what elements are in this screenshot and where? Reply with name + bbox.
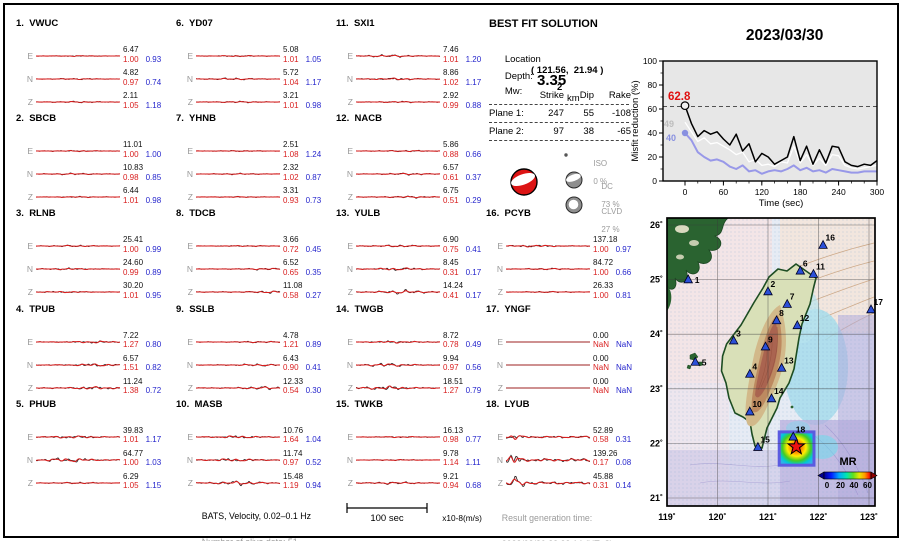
trace-values: 5.081.011.05 bbox=[283, 45, 321, 64]
component-label: Z bbox=[493, 383, 503, 393]
plot-xlabel: Time (sec) bbox=[759, 198, 804, 209]
waveform-trace bbox=[36, 449, 126, 471]
trace-row: N6.520.650.35 bbox=[196, 258, 346, 280]
misfit2-value: 0.73 bbox=[306, 196, 322, 205]
misfit1-value: 1.21 bbox=[283, 340, 299, 349]
lat-tick-label: 25˚ bbox=[650, 275, 663, 285]
misfit1-value: 1.08 bbox=[283, 150, 299, 159]
amplitude-value: 0.00 bbox=[593, 331, 609, 340]
misfit1-value: 0.41 bbox=[443, 291, 459, 300]
trace-values: 6.571.510.82 bbox=[123, 354, 161, 373]
misfit2-value: 0.88 bbox=[466, 101, 482, 110]
amplitude-value: 3.66 bbox=[283, 235, 299, 244]
scalebar-label: 100 sec bbox=[346, 513, 428, 524]
waveform-trace bbox=[356, 163, 446, 185]
waveform-trace bbox=[356, 472, 446, 494]
component-label: Z bbox=[493, 478, 503, 488]
lat-tick-label: 23˚ bbox=[650, 384, 663, 394]
table-divider bbox=[489, 104, 629, 105]
misfit2-value: 0.85 bbox=[146, 173, 162, 182]
component-label: E bbox=[493, 432, 503, 442]
amplitude-value: 6.44 bbox=[123, 186, 139, 195]
amplitude-value: 11.74 bbox=[283, 449, 302, 458]
result-generation-time: Result generation time: 2023/03/30 23:22… bbox=[492, 499, 613, 541]
trace-values: 3.211.010.98 bbox=[283, 91, 321, 110]
component-label: N bbox=[183, 169, 193, 179]
solution-title: BEST FIT SOLUTION bbox=[489, 18, 598, 30]
plot-ylabel: Misfit reduction (%) bbox=[630, 80, 641, 161]
misfit1-value: 0.97 bbox=[443, 363, 459, 372]
y-tick-label: 40 bbox=[648, 128, 658, 138]
misfit2-value: 0.89 bbox=[306, 340, 322, 349]
station-number-label: 18 bbox=[796, 424, 806, 434]
misfit2-value: 1.20 bbox=[466, 55, 482, 64]
misfit2-value: 1.15 bbox=[146, 481, 162, 490]
misfit2-value: 1.17 bbox=[466, 78, 482, 87]
misfit1-value: 0.99 bbox=[123, 268, 139, 277]
component-label: Z bbox=[183, 192, 193, 202]
trace-row: E39.831.011.17 bbox=[36, 426, 186, 448]
waveform-trace bbox=[36, 68, 126, 90]
component-label: E bbox=[23, 51, 33, 61]
misfit2-value: 0.17 bbox=[466, 268, 482, 277]
amplitude-value: 3.21 bbox=[283, 91, 299, 100]
result-time-label: Result generation time: bbox=[502, 513, 592, 523]
plane1-strike: 247 bbox=[519, 108, 564, 119]
misfit2-value: 0.72 bbox=[146, 386, 162, 395]
amplitude-value: 14.24 bbox=[443, 281, 463, 290]
clvd-percent: 27 % bbox=[601, 225, 619, 234]
misfit1-value: 0.94 bbox=[443, 481, 459, 490]
component-label: E bbox=[183, 51, 193, 61]
trace-row: Z15.481.190.94 bbox=[196, 472, 346, 494]
component-label: Z bbox=[183, 383, 193, 393]
trace-values: 8.450.310.17 bbox=[443, 258, 481, 277]
trace-values: 6.520.650.35 bbox=[283, 258, 321, 277]
misfit2-value: 1.00 bbox=[146, 150, 162, 159]
component-label: N bbox=[493, 264, 503, 274]
lat-tick-label: 22˚ bbox=[650, 438, 663, 448]
station-title: 7. YHNB bbox=[176, 113, 216, 124]
amplitude-value: 6.52 bbox=[283, 258, 299, 267]
misfit2-value: 0.94 bbox=[306, 481, 322, 490]
trace-row: N5.721.041.17 bbox=[196, 68, 346, 90]
waveform-trace bbox=[356, 449, 446, 471]
component-label: Z bbox=[343, 287, 353, 297]
trace-values: 3.310.930.73 bbox=[283, 186, 321, 205]
misfit1-value: 1.05 bbox=[123, 101, 139, 110]
misfit1-value: 1.00 bbox=[123, 55, 139, 64]
misfit2-value: 0.30 bbox=[306, 386, 322, 395]
misfit1-value: 0.61 bbox=[443, 173, 459, 182]
misfit2-value: 1.04 bbox=[306, 435, 322, 444]
waveform-trace bbox=[196, 331, 286, 353]
trace-values: 6.750.510.29 bbox=[443, 186, 481, 205]
misfit1-value: 1.00 bbox=[593, 291, 609, 300]
misfit2-value: 0.95 bbox=[146, 291, 162, 300]
misfit2-value: 0.81 bbox=[616, 291, 632, 300]
trace-row: Z6.750.510.29 bbox=[356, 186, 506, 208]
station-title: 11. SXI1 bbox=[336, 18, 375, 29]
misfit2-value: 1.03 bbox=[146, 458, 162, 467]
amplitude-value: 24.60 bbox=[123, 258, 143, 267]
iso-label: ISO bbox=[593, 159, 607, 168]
best-fit-solution-panel: BEST FIT SOLUTION Location ( 121.56, 21.… bbox=[487, 12, 647, 224]
trace-row: Z12.330.540.30 bbox=[196, 377, 346, 399]
waveform-trace bbox=[196, 281, 286, 303]
x-tick-label: 60 bbox=[719, 187, 729, 197]
misfit1-value: 1.01 bbox=[283, 101, 299, 110]
trace-row: Z3.211.010.98 bbox=[196, 91, 346, 113]
trace-row: E5.081.011.05 bbox=[196, 45, 346, 67]
station-title: 14. TWGB bbox=[336, 304, 384, 315]
misfit1-value: 0.98 bbox=[123, 173, 139, 182]
amplitude-value: 9.21 bbox=[443, 472, 459, 481]
misfit1-value: 1.27 bbox=[123, 340, 139, 349]
waveform-trace bbox=[36, 472, 126, 494]
amplitude-value: 9.94 bbox=[443, 354, 459, 363]
misfit1-value: 1.05 bbox=[123, 481, 139, 490]
waveform-trace bbox=[356, 377, 446, 399]
component-label: N bbox=[493, 455, 503, 465]
misfit1-value: 0.97 bbox=[283, 458, 299, 467]
misfit1-value: 0.72 bbox=[283, 245, 299, 254]
waveform-trace bbox=[36, 377, 126, 399]
misfit1-value: 0.99 bbox=[443, 101, 459, 110]
misfit2-value: 0.97 bbox=[616, 245, 632, 254]
trace-values: 64.771.001.03 bbox=[123, 449, 161, 468]
component-label: N bbox=[343, 74, 353, 84]
green-island bbox=[791, 406, 794, 409]
misfit1-value: 1.01 bbox=[123, 196, 139, 205]
lon-tick-label: 121˚ bbox=[759, 512, 777, 522]
component-label: E bbox=[23, 337, 33, 347]
misfit-reduction-plot: 020406080100060120180240300 Misfit reduc… bbox=[630, 50, 902, 216]
misfit1-value: 0.31 bbox=[593, 481, 609, 490]
trace-values: 6.471.000.93 bbox=[123, 45, 161, 64]
component-label: N bbox=[343, 360, 353, 370]
amplitude-value: 10.76 bbox=[283, 426, 303, 435]
misfit1-value: 1.27 bbox=[443, 386, 459, 395]
trace-row: N11.740.970.52 bbox=[196, 449, 346, 471]
trace-values: 5.721.041.17 bbox=[283, 68, 321, 87]
waveform-trace bbox=[356, 68, 446, 90]
amplitude-value: 25.41 bbox=[123, 235, 143, 244]
trace-values: 6.441.010.98 bbox=[123, 186, 161, 205]
component-label: Z bbox=[343, 192, 353, 202]
misfit1-value: 1.02 bbox=[283, 173, 299, 182]
trace-row: Z2.111.051.18 bbox=[36, 91, 186, 113]
misfit2-value: 1.17 bbox=[306, 78, 322, 87]
amplitude-value: 39.83 bbox=[123, 426, 143, 435]
trace-row: Z11.241.380.72 bbox=[36, 377, 186, 399]
trace-row: N4.820.970.74 bbox=[36, 68, 186, 90]
component-label: E bbox=[343, 51, 353, 61]
trace-row: E25.411.000.99 bbox=[36, 235, 186, 257]
trace-row: Z2.920.990.88 bbox=[356, 91, 506, 113]
trace-row: N6.430.900.41 bbox=[196, 354, 346, 376]
misfit2-value: 0.66 bbox=[466, 150, 482, 159]
misfit1-value: 1.01 bbox=[443, 55, 459, 64]
station-title: 12. NACB bbox=[336, 113, 382, 124]
waveform-trace bbox=[356, 426, 446, 448]
amplitude-value: 11.01 bbox=[123, 140, 142, 149]
amplitude-value: 6.90 bbox=[443, 235, 459, 244]
station-number-label: 12 bbox=[800, 313, 810, 323]
strike-header: Strike bbox=[519, 90, 564, 101]
taiwan-station-map: 123456789101112131415161718 26˚25˚24˚23˚… bbox=[630, 215, 902, 541]
amplitude-value: 5.72 bbox=[283, 68, 299, 77]
component-label: N bbox=[23, 264, 33, 274]
trace-values: 2.511.081.24 bbox=[283, 140, 321, 159]
amplitude-value: 6.75 bbox=[443, 186, 459, 195]
trace-row: N9.940.970.56 bbox=[356, 354, 506, 376]
trace-row: N6.570.610.37 bbox=[356, 163, 506, 185]
station-block: 8. TDCB E3.660.720.45N6.520.650.35Z11.08… bbox=[176, 208, 328, 303]
trace-values: 2.111.051.18 bbox=[123, 91, 161, 110]
waveform-trace bbox=[36, 235, 126, 257]
trace-values: 52.890.580.31 bbox=[593, 426, 631, 445]
waveform-trace bbox=[356, 331, 446, 353]
waveform-trace bbox=[506, 258, 596, 280]
station-block: 3. RLNB E25.411.000.99N24.600.990.89Z30.… bbox=[16, 208, 168, 303]
trace-values: 8.861.021.17 bbox=[443, 68, 481, 87]
trace-values: 11.080.580.27 bbox=[283, 281, 321, 300]
station-title: 6. YD07 bbox=[176, 18, 213, 29]
y-tick-label: 80 bbox=[648, 80, 658, 90]
trace-values: 14.240.410.17 bbox=[443, 281, 481, 300]
trace-values: 4.820.970.74 bbox=[123, 68, 161, 87]
misfit2-value: 0.74 bbox=[146, 78, 162, 87]
lat-tick-label: 24˚ bbox=[650, 329, 663, 339]
plane2-dip: 38 bbox=[569, 126, 594, 137]
white-start-label: 49 bbox=[664, 119, 674, 129]
trace-row: E6.900.750.41 bbox=[356, 235, 506, 257]
trace-values: 7.221.270.80 bbox=[123, 331, 161, 350]
misfit2-value: 0.41 bbox=[466, 245, 482, 254]
component-label: E bbox=[183, 146, 193, 156]
misfit2-value: 0.79 bbox=[466, 386, 482, 395]
station-title: 17. YNGF bbox=[486, 304, 531, 315]
waveform-trace bbox=[356, 281, 446, 303]
station-title: 8. TDCB bbox=[176, 208, 216, 219]
waveform-trace bbox=[356, 258, 446, 280]
misfit2-value: 1.18 bbox=[146, 101, 162, 110]
amplitude-value: 0.00 bbox=[593, 377, 609, 386]
station-title: 5. PHUB bbox=[16, 399, 56, 410]
station-block: 1. VWUC E6.471.000.93N4.820.970.74Z2.111… bbox=[16, 18, 168, 113]
amplitude-value: 3.31 bbox=[283, 186, 299, 195]
component-label: Z bbox=[23, 287, 33, 297]
trace-values: 0.00NaNNaN bbox=[593, 331, 632, 350]
plane2-row: Plane 2: 97 38 -65 bbox=[489, 126, 629, 137]
trace-row: N2.321.020.87 bbox=[196, 163, 346, 185]
misfit1-value: 0.98 bbox=[443, 435, 459, 444]
component-label: Z bbox=[343, 383, 353, 393]
waveform-trace bbox=[36, 140, 126, 162]
trace-row: N24.600.990.89 bbox=[36, 258, 186, 280]
trace-row: Z30.201.010.95 bbox=[36, 281, 186, 303]
misfit2-value: 0.27 bbox=[306, 291, 322, 300]
trace-values: 8.720.780.49 bbox=[443, 331, 481, 350]
station-block: 2. SBCB E11.011.001.00N10.830.980.85Z6.4… bbox=[16, 113, 168, 208]
amplitude-value: 45.88 bbox=[593, 472, 613, 481]
mr-tick-label: 60 bbox=[863, 481, 872, 490]
lat-tick-label: 21˚ bbox=[650, 493, 663, 503]
waveform-trace bbox=[36, 331, 126, 353]
trace-values: 6.291.051.15 bbox=[123, 472, 161, 491]
clvd-icon bbox=[566, 197, 582, 213]
trace-row: E16.130.980.77 bbox=[356, 426, 506, 448]
trace-values: 15.481.190.94 bbox=[283, 472, 321, 491]
waveform-trace bbox=[196, 426, 286, 448]
trace-values: 11.740.970.52 bbox=[283, 449, 321, 468]
misfit1-value: 0.31 bbox=[443, 268, 459, 277]
waveform-trace bbox=[356, 235, 446, 257]
station-title: 1. VWUC bbox=[16, 18, 58, 29]
amplitude-value: 6.47 bbox=[123, 45, 139, 54]
amplitude-value: 6.29 bbox=[123, 472, 139, 481]
waveform-trace bbox=[196, 258, 286, 280]
component-label: N bbox=[493, 360, 503, 370]
component-label: E bbox=[343, 337, 353, 347]
trace-row: Z14.240.410.17 bbox=[356, 281, 506, 303]
trace-row: E10.761.641.04 bbox=[196, 426, 346, 448]
peak-misfit-label: 62.8 bbox=[668, 91, 691, 103]
amplitude-value: 6.43 bbox=[283, 354, 299, 363]
misfit2-value: 1.24 bbox=[306, 150, 322, 159]
filter-info-line1: BATS, Velocity, 0.02–0.1 Hz bbox=[202, 511, 311, 521]
waveform-trace bbox=[36, 281, 126, 303]
component-label: E bbox=[23, 241, 33, 251]
plane1-dip: 55 bbox=[569, 108, 594, 119]
component-label: E bbox=[493, 337, 503, 347]
waveform-trace bbox=[506, 354, 596, 376]
units-legend: x10-8(m/s) misfit1 misfit2 bbox=[433, 499, 493, 541]
waveform-trace bbox=[36, 186, 126, 208]
trace-values: 84.721.000.66 bbox=[593, 258, 631, 277]
misfit1-value: 1.00 bbox=[123, 458, 139, 467]
station-title: 13. YULB bbox=[336, 208, 380, 219]
waveform-trace bbox=[36, 258, 126, 280]
rake-header: Rake bbox=[597, 90, 631, 101]
amplitude-value: 139.26 bbox=[593, 449, 617, 458]
component-label: N bbox=[343, 455, 353, 465]
waveform-trace bbox=[36, 354, 126, 376]
table-divider bbox=[489, 122, 629, 123]
misfit2-value: 1.11 bbox=[466, 458, 481, 467]
x-tick-label: 300 bbox=[870, 187, 884, 197]
misfit1-value: 1.51 bbox=[123, 363, 139, 372]
misfit1-value: 1.04 bbox=[283, 78, 299, 87]
misfit2-value: 0.49 bbox=[466, 340, 482, 349]
component-label: N bbox=[23, 360, 33, 370]
dc-label: DC bbox=[601, 182, 613, 191]
component-label: E bbox=[493, 241, 503, 251]
component-label: N bbox=[343, 264, 353, 274]
amplitude-value: 18.51 bbox=[443, 377, 463, 386]
component-label: Z bbox=[493, 287, 503, 297]
lon-tick-label: 122˚ bbox=[809, 512, 827, 522]
station-number-label: 7 bbox=[790, 292, 795, 302]
trace-row: Z9.210.940.68 bbox=[356, 472, 506, 494]
component-label: N bbox=[23, 74, 33, 84]
amplitude-value: 8.72 bbox=[443, 331, 459, 340]
trace-values: 16.130.980.77 bbox=[443, 426, 481, 445]
waveform-trace bbox=[196, 472, 286, 494]
waveform-trace bbox=[36, 426, 126, 448]
station-number-label: 6 bbox=[803, 258, 808, 268]
component-label: N bbox=[343, 169, 353, 179]
trace-row: N8.450.310.17 bbox=[356, 258, 506, 280]
misfit1-value: 0.88 bbox=[443, 150, 459, 159]
amplitude-value: 15.48 bbox=[283, 472, 303, 481]
component-label: E bbox=[183, 337, 193, 347]
amplitude-value: 9.78 bbox=[443, 449, 459, 458]
misfit2-value: 0.56 bbox=[466, 363, 482, 372]
misfit2-value: 0.17 bbox=[466, 291, 482, 300]
component-label: Z bbox=[183, 287, 193, 297]
plane2-rake: -65 bbox=[597, 126, 631, 137]
station-block: 15. TWKB E16.130.980.77N9.781.141.11Z9.2… bbox=[336, 399, 488, 494]
trace-values: 7.461.011.20 bbox=[443, 45, 481, 64]
misfit2-value: 0.08 bbox=[616, 458, 632, 467]
misfit2-value: 0.82 bbox=[146, 363, 162, 372]
misfit1-value: 1.00 bbox=[593, 268, 609, 277]
station-block: 14. TWGB E8.720.780.49N9.940.970.56Z18.5… bbox=[336, 304, 488, 399]
trace-values: 10.830.980.85 bbox=[123, 163, 161, 182]
trace-values: 6.430.900.41 bbox=[283, 354, 321, 373]
trace-values: 9.210.940.68 bbox=[443, 472, 481, 491]
trace-values: 6.900.750.41 bbox=[443, 235, 481, 254]
trace-row: E6.471.000.93 bbox=[36, 45, 186, 67]
amplitude-value: 2.11 bbox=[123, 91, 138, 100]
component-label: Z bbox=[23, 478, 33, 488]
amplitude-value: 7.46 bbox=[443, 45, 459, 54]
station-number-label: 11 bbox=[816, 262, 825, 272]
amplitude-value: 30.20 bbox=[123, 281, 143, 290]
misfit2-value: 0.45 bbox=[306, 245, 322, 254]
lon-tick-label: 119˚ bbox=[658, 512, 676, 522]
misfit2-value: 1.05 bbox=[306, 55, 322, 64]
waveform-trace bbox=[356, 186, 446, 208]
misfit2-value: 0.87 bbox=[306, 173, 322, 182]
amplitude-value: 5.86 bbox=[443, 140, 459, 149]
misfit2-value: 0.99 bbox=[146, 245, 162, 254]
misfit1-value: NaN bbox=[593, 363, 609, 372]
trace-values: 25.411.000.99 bbox=[123, 235, 161, 254]
station-number-label: 8 bbox=[779, 308, 784, 318]
misfit1-value: 0.17 bbox=[593, 458, 609, 467]
blue-start-marker bbox=[682, 130, 688, 136]
trace-values: 4.781.210.89 bbox=[283, 331, 321, 350]
waveform-trace bbox=[506, 449, 596, 471]
trace-values: 45.880.310.14 bbox=[593, 472, 631, 491]
trace-row: E7.221.270.80 bbox=[36, 331, 186, 353]
x-tick-label: 240 bbox=[832, 187, 846, 197]
misfit2-value: 0.80 bbox=[146, 340, 162, 349]
station-block: 10. MASB E10.761.641.04N11.740.970.52Z15… bbox=[176, 399, 328, 494]
trace-values: 0.00NaNNaN bbox=[593, 377, 632, 396]
mr-tick-label: 20 bbox=[836, 481, 845, 490]
misfit1-value: 1.64 bbox=[283, 435, 299, 444]
alive-data-count: Number of alive data: 51 bbox=[202, 537, 298, 541]
trace-row: E3.660.720.45 bbox=[196, 235, 346, 257]
trace-row: Z18.511.270.79 bbox=[356, 377, 506, 399]
blue-start-label: 40 bbox=[666, 133, 676, 143]
trace-values: 3.660.720.45 bbox=[283, 235, 321, 254]
waveform-trace bbox=[196, 449, 286, 471]
